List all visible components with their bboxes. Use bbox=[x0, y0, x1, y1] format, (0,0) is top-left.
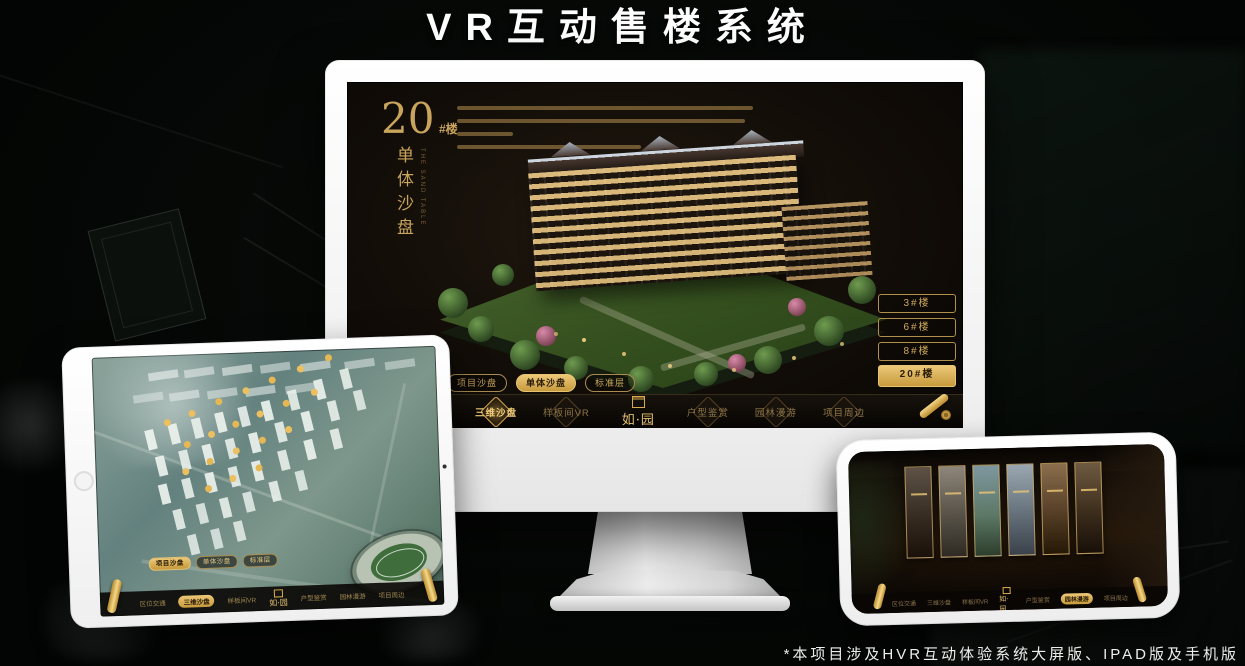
aerial-road bbox=[368, 383, 406, 550]
nav-item-3d-sandbox[interactable]: 三维沙盘 bbox=[178, 595, 214, 608]
floor-button-8[interactable]: 8#楼 bbox=[878, 342, 956, 361]
floor-button-3[interactable]: 3#楼 bbox=[878, 294, 956, 313]
floor-button-20[interactable]: 20#楼 bbox=[878, 365, 956, 387]
seal-icon bbox=[632, 396, 645, 408]
garden-lights bbox=[582, 338, 586, 342]
subtab-single-sandbox[interactable]: 单体沙盘 bbox=[196, 555, 238, 569]
phone-device: 区位交通 三维沙盘 样板间VR 如·园 户型鉴赏 园林漫游 项目周边 bbox=[836, 432, 1181, 627]
gallery-card-label bbox=[1081, 489, 1097, 491]
block-number-suffix: #楼 bbox=[439, 120, 458, 137]
gallery-card-label bbox=[1047, 490, 1063, 492]
subtab-standard-floor[interactable]: 标准层 bbox=[243, 553, 278, 567]
gallery-card[interactable] bbox=[972, 464, 1001, 557]
scroll-icon[interactable] bbox=[911, 392, 957, 422]
flower-tree bbox=[728, 354, 746, 372]
gallery-card[interactable] bbox=[1074, 462, 1103, 555]
flower-tree bbox=[788, 298, 806, 316]
nav-item-floorplans[interactable]: 户型鉴赏 bbox=[687, 395, 729, 429]
tree bbox=[754, 346, 782, 374]
roof-gable bbox=[550, 141, 591, 158]
tablet-camera bbox=[443, 464, 447, 468]
subtab-standard-floor[interactable]: 标准层 bbox=[585, 374, 635, 392]
gallery-card[interactable] bbox=[938, 465, 967, 558]
roof-gable bbox=[640, 135, 681, 152]
nav-item-showroom-vr[interactable]: 样板间VR bbox=[543, 395, 590, 429]
tree bbox=[510, 340, 540, 370]
tablet-screen: 项目沙盘 单体沙盘 标准层 区位交通 三维沙盘 样板间VR 如·园 户型鉴赏 园… bbox=[92, 346, 445, 617]
nav-item-label: 园林漫游 bbox=[755, 405, 797, 419]
nav-item-3d-sandbox[interactable]: 三维沙盘 bbox=[927, 597, 951, 607]
nav-item-garden-tour[interactable]: 园林漫游 bbox=[339, 590, 365, 601]
floor-button-6[interactable]: 6#楼 bbox=[878, 318, 956, 337]
description-line bbox=[457, 106, 753, 110]
nav-item-floorplans[interactable]: 户型鉴赏 bbox=[300, 592, 326, 603]
brand-logo: 如·园 bbox=[269, 589, 288, 609]
brand-logo: 如·园 bbox=[999, 586, 1015, 613]
tree bbox=[438, 288, 468, 318]
background-plaque-inner bbox=[101, 222, 193, 329]
page-footnote: *本项目涉及HVR互动体验系统大屏版、IPAD版及手机版 bbox=[784, 643, 1239, 664]
nav-item-floorplans[interactable]: 户型鉴赏 bbox=[1026, 594, 1050, 604]
block-title-english: THE SAND TABLE bbox=[419, 148, 425, 258]
tree bbox=[468, 316, 494, 342]
interior-wall bbox=[1094, 444, 1168, 608]
brand-logo: 如·园 bbox=[622, 396, 655, 428]
nav-item-garden-tour[interactable]: 园林漫游 bbox=[1061, 592, 1093, 604]
promo-canvas: VR互动售楼系统 20 #楼 单体沙盘 THE SAND TABLE bbox=[0, 0, 1245, 666]
tablet-device: 项目沙盘 单体沙盘 标准层 区位交通 三维沙盘 样板间VR 如·园 户型鉴赏 园… bbox=[61, 334, 459, 628]
brand-logo-text: 如·园 bbox=[622, 409, 655, 428]
nav-item-surroundings[interactable]: 项目周边 bbox=[378, 589, 404, 600]
sandbox-subtabs: 项目沙盘 单体沙盘 标准层 bbox=[447, 374, 635, 392]
subtab-project-sandbox[interactable]: 项目沙盘 bbox=[447, 374, 507, 392]
brand-logo-text: 如·园 bbox=[269, 597, 288, 609]
description-line bbox=[457, 132, 513, 136]
aerial-haze bbox=[92, 346, 276, 469]
subtab-project-sandbox[interactable]: 项目沙盘 bbox=[149, 556, 191, 570]
gallery-card[interactable] bbox=[904, 466, 933, 559]
monitor-stand-neck bbox=[588, 512, 752, 574]
brand-logo-text: 如·园 bbox=[999, 593, 1015, 613]
gallery-card-label bbox=[1013, 490, 1029, 492]
phone-screen: 区位交通 三维沙盘 样板间VR 如·园 户型鉴赏 园林漫游 项目周边 bbox=[848, 444, 1168, 614]
tablet-navbar: 区位交通 三维沙盘 样板间VR 如·园 户型鉴赏 园林漫游 项目周边 bbox=[100, 581, 445, 617]
gallery-card[interactable] bbox=[1006, 463, 1035, 556]
monitor-stand-base bbox=[550, 596, 790, 611]
tree bbox=[848, 276, 876, 304]
nav-item-3d-sandbox[interactable]: 三维沙盘 bbox=[475, 395, 517, 429]
nav-item-surroundings[interactable]: 项目周边 bbox=[823, 395, 865, 429]
building-3d-model[interactable] bbox=[432, 148, 902, 398]
description-line bbox=[457, 119, 745, 123]
flower-tree bbox=[536, 326, 556, 346]
block-number: 20 bbox=[381, 98, 434, 140]
building-wing bbox=[782, 201, 873, 281]
tablet-home-button[interactable] bbox=[74, 471, 95, 492]
nav-item-showroom-vr[interactable]: 样板间VR bbox=[227, 594, 256, 605]
nav-item-label: 户型鉴赏 bbox=[687, 405, 729, 419]
nav-item-garden-tour[interactable]: 园林漫游 bbox=[755, 395, 797, 429]
tablet-subtabs: 项目沙盘 单体沙盘 标准层 bbox=[149, 553, 278, 570]
tree bbox=[814, 316, 844, 346]
block-title-vertical: 单体沙盘 bbox=[391, 146, 416, 276]
nav-item-label: 样板间VR bbox=[543, 405, 590, 419]
scroll-cap bbox=[941, 410, 951, 420]
stadium-track bbox=[372, 543, 428, 583]
scene-gallery bbox=[904, 462, 1103, 559]
nav-item-location[interactable]: 区位交通 bbox=[139, 597, 165, 608]
nav-item-showroom-vr[interactable]: 样板间VR bbox=[962, 596, 989, 606]
gallery-card-label bbox=[911, 493, 927, 495]
building-facade bbox=[528, 155, 804, 291]
roof-gable bbox=[732, 129, 773, 146]
subtab-single-sandbox[interactable]: 单体沙盘 bbox=[516, 374, 576, 392]
nav-item-location[interactable]: 区位交通 bbox=[892, 598, 916, 608]
tree bbox=[694, 362, 718, 386]
nav-item-label: 项目周边 bbox=[823, 405, 865, 419]
tree bbox=[492, 264, 514, 286]
page-title: VR互动售楼系统 bbox=[0, 0, 1245, 56]
nav-item-label: 三维沙盘 bbox=[475, 405, 517, 419]
gallery-card[interactable] bbox=[1040, 462, 1069, 555]
gallery-card-label bbox=[945, 492, 961, 494]
background-map-patch bbox=[980, 50, 1245, 450]
gallery-card-label bbox=[979, 491, 995, 493]
nav-item-surroundings[interactable]: 项目周边 bbox=[1104, 592, 1128, 602]
